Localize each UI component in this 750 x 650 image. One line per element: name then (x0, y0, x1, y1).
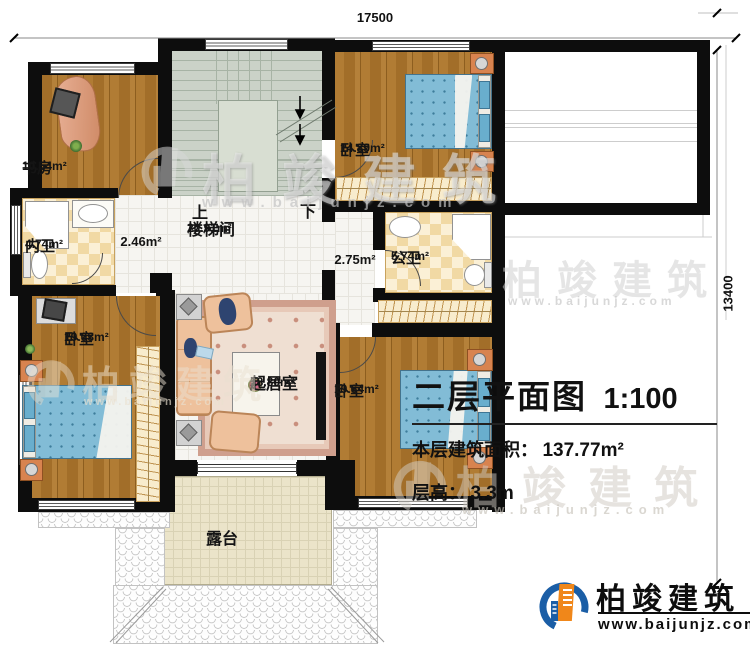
brand-logo-icon (538, 576, 592, 634)
floor-height-value: 3.3m (470, 483, 513, 504)
dimension-width-label: 17500 (330, 10, 420, 25)
page-title: 二层平面图 (412, 378, 587, 415)
drawing-scale: 1:100 (603, 383, 677, 415)
floor-height-label: 层高： (412, 483, 466, 503)
room-area: 20.91m² (187, 222, 232, 236)
room-area: 19.03m² (64, 331, 109, 345)
room-label-corridor: 2.75m² (324, 252, 386, 267)
stair-down-label: 下 (296, 198, 320, 222)
floor-area-value: 137.77m² (542, 440, 623, 461)
stair-up-label: 上 (188, 199, 212, 223)
stair-break-line (276, 100, 336, 142)
brand-website: www.baijunjz.com (598, 612, 750, 633)
room-area: 4.74m² (25, 238, 63, 252)
room-area: 18.80m² (250, 376, 295, 390)
floor-area-row: 本层建筑面积： 137.77m² (412, 436, 717, 462)
floor-height-row: 层高： 3.3m (412, 479, 717, 505)
title-row: 二层平面图 1:100 (412, 370, 717, 425)
room-name: 露台 (206, 531, 238, 549)
annotation-layer (0, 0, 750, 650)
extension-lines (505, 45, 726, 320)
floor-plan: 17500 13400 书房 10.54m² 内卫 4.74m² 2.46m² … (0, 0, 750, 650)
room-label-hall: 2.46m² (110, 234, 172, 249)
room-area: 19.64m² (334, 383, 379, 397)
room-area: 5.74m² (391, 250, 429, 264)
title-block: 二层平面图 1:100 本层建筑面积： 137.77m² 层高： 3.3m (412, 370, 717, 505)
room-area: 14.89m² (340, 142, 385, 156)
dimension-height-label: 13400 (721, 267, 736, 321)
floor-area-label: 本层建筑面积： (412, 440, 538, 460)
brand-logo-block: 柏竣建筑 www.baijunjz.com (538, 574, 743, 638)
roof-hip-lines (110, 587, 384, 643)
room-area: 10.54m² (22, 160, 67, 174)
